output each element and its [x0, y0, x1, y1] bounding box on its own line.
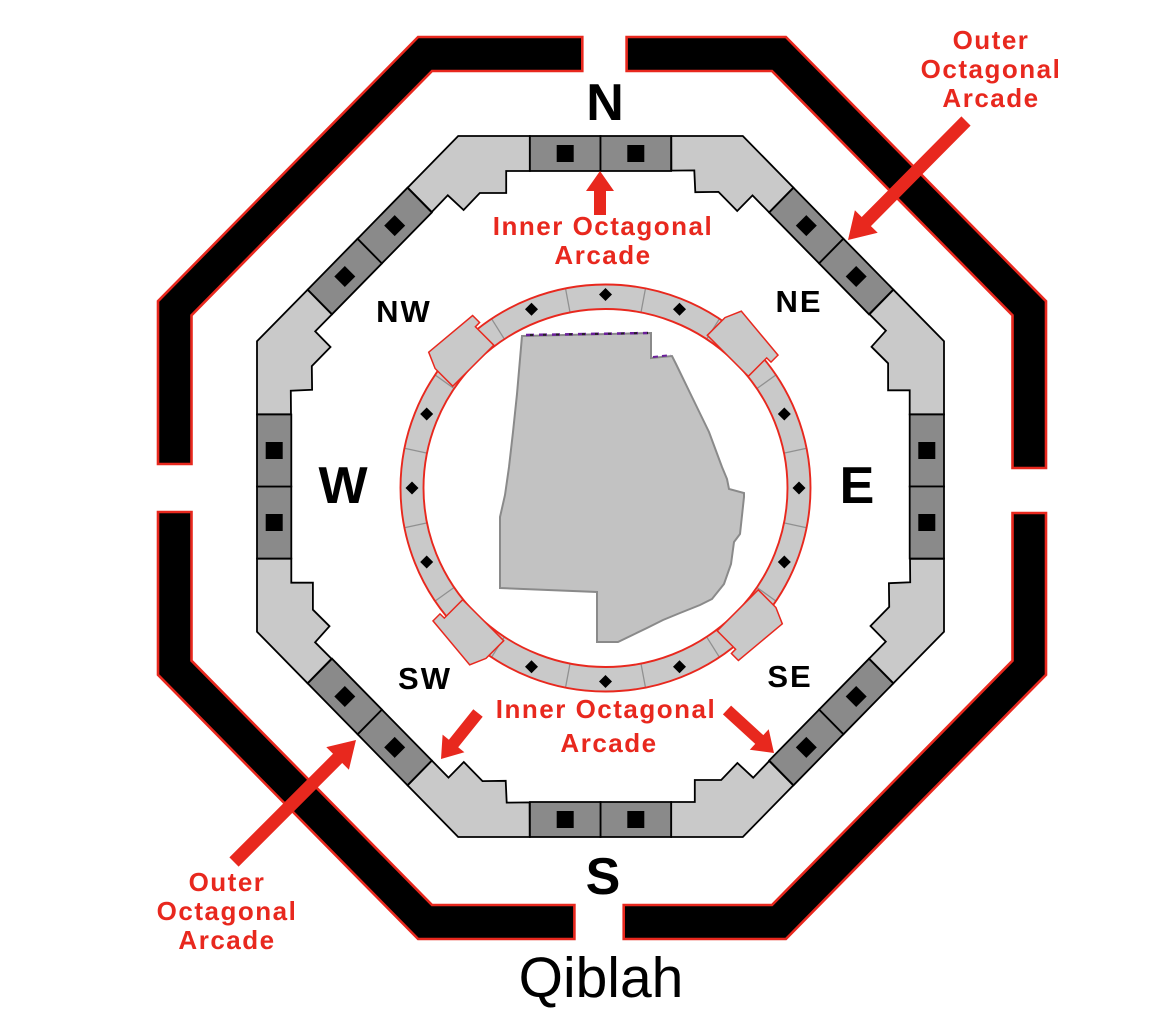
svg-text:Octagonal: Octagonal [157, 896, 298, 926]
svg-text:Arcade: Arcade [554, 240, 651, 270]
svg-text:SW: SW [398, 661, 452, 696]
svg-text:Arcade: Arcade [560, 728, 657, 758]
svg-text:E: E [840, 457, 875, 515]
svg-text:Inner Octagonal: Inner Octagonal [496, 694, 716, 724]
svg-text:Outer: Outer [953, 25, 1030, 55]
svg-text:NW: NW [376, 294, 432, 329]
svg-text:Octagonal: Octagonal [921, 54, 1062, 84]
svg-text:Inner Octagonal: Inner Octagonal [493, 211, 713, 241]
svg-text:Arcade: Arcade [178, 925, 275, 955]
svg-text:S: S [586, 848, 621, 906]
svg-text:Arcade: Arcade [942, 83, 1039, 113]
svg-text:Outer: Outer [189, 867, 266, 897]
svg-text:NE: NE [775, 284, 822, 319]
svg-text:W: W [318, 457, 368, 515]
svg-text:N: N [586, 74, 624, 132]
svg-text:SE: SE [767, 659, 812, 694]
svg-text:Qiblah: Qiblah [519, 946, 684, 1010]
